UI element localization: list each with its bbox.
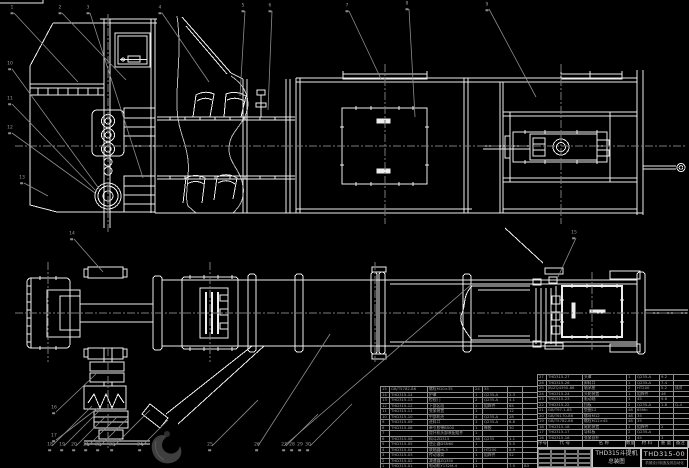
bom-col-notes: 备注: [674, 441, 688, 447]
balloon-number: 6: [269, 4, 272, 12]
bom-col-no: 序号: [538, 441, 548, 447]
balloon-number: 5: [242, 4, 245, 12]
plan-takeup-screw: [645, 310, 688, 313]
bom-col-material: 材 料: [635, 441, 659, 447]
head-section: [30, 16, 643, 228]
balloon-number: 14: [69, 232, 75, 240]
coupling: [90, 362, 124, 371]
balloon-number: 20: [71, 443, 77, 451]
balloon-number: 1: [11, 6, 14, 14]
bom-col-weight: 重 量: [659, 441, 673, 447]
bom-header-row: 序号 代 号 名 称 数量 材 料 重 量 备注: [537, 440, 689, 448]
drawing-frame-corner: [0, 0, 43, 3]
balloon-number: 21: [83, 443, 89, 451]
elevation-view: [30, 16, 685, 263]
title-block-title: THD315斗提机 总装图: [592, 448, 641, 468]
leader-lines: [12, 9, 576, 446]
drawing-number: THD315-00: [642, 449, 687, 459]
plan-bellows-hopper: [461, 277, 560, 347]
revision-grid: [537, 448, 592, 468]
bearing-pedestal: [88, 348, 123, 359]
bucket-bolt: [256, 90, 266, 117]
tail-section: [472, 70, 685, 215]
bom-table-right: 27THD315-27头罩1Q235-A9.226THD315-26卸料口1Q2…: [537, 374, 689, 441]
balloon-number: 16: [51, 406, 57, 414]
balloon-number: 27: [281, 443, 287, 451]
middle-casing: [296, 71, 472, 213]
bom-col-qty: 数量: [626, 441, 636, 447]
bom-col-name: 名 称: [583, 441, 626, 447]
drive-motor: [94, 411, 128, 428]
balloon-number: 3: [87, 6, 90, 14]
takeup-frame: [510, 112, 610, 182]
cad-drawing-canvas: 1234567891011121314151617181920212223242…: [0, 0, 689, 468]
watermark-logo: [152, 431, 182, 463]
tail-box-handle: [572, 303, 575, 318]
balloon-number: 22: [95, 443, 101, 451]
balloon-number: 11: [7, 97, 13, 105]
door-handle: [377, 119, 390, 123]
takeup-screw-right: [643, 166, 676, 169]
balloon-number: 7: [346, 4, 349, 12]
balloon-number: 10: [7, 62, 13, 70]
head-cover-slope: [182, 17, 243, 79]
door-handle: [377, 169, 390, 173]
balloon-number: 26: [254, 443, 260, 451]
inspection-door-head: [115, 33, 150, 67]
balloon-number: 2: [59, 6, 62, 14]
bearing-pedestal: [88, 267, 123, 278]
balloon-number: 28: [289, 443, 295, 451]
balloon-number: 8: [406, 2, 409, 10]
balloon-number: 24: [137, 443, 143, 451]
product-name: THD315斗提机: [593, 449, 640, 458]
plan-drive-unit: [84, 348, 150, 444]
balloon-number: 12: [7, 126, 13, 134]
balloon-number: 17: [51, 434, 57, 442]
balloon-number: 13: [19, 176, 25, 184]
balloon-number: 29: [297, 443, 303, 451]
balloon-number: 15: [571, 231, 577, 239]
plan-feed-chute: [142, 346, 264, 428]
balloon-number: 23: [109, 443, 115, 451]
balloon-number: 18: [47, 443, 53, 451]
takeup-screw-left: [483, 146, 530, 149]
title-block-number: THD315-00 机械设计制造及其自动化: [641, 448, 688, 468]
balloon-number: 9: [486, 3, 489, 11]
balloon-number: 4: [159, 6, 162, 14]
balloon-number: 25: [207, 443, 213, 451]
projection-line: [505, 228, 543, 263]
bom-table-left: 15GB/T5782-86螺栓M10×35243514THD315-14护罩1Q…: [380, 386, 539, 468]
plan-tail-box: [545, 268, 688, 352]
balloon-number: 19: [59, 443, 65, 451]
balloon-number: 30: [305, 443, 311, 451]
head-brackets: [124, 108, 155, 212]
drawing-subtitle: 总装图: [593, 458, 640, 466]
bom-col-code: 代 号: [548, 441, 583, 447]
organization: 机械设计制造及其自动化: [642, 459, 687, 466]
elevator-buckets: [183, 92, 246, 203]
head-casing-curve: [229, 76, 248, 213]
bom-row: 1THD315-01电动机Y132M-417.5B3: [381, 464, 539, 468]
